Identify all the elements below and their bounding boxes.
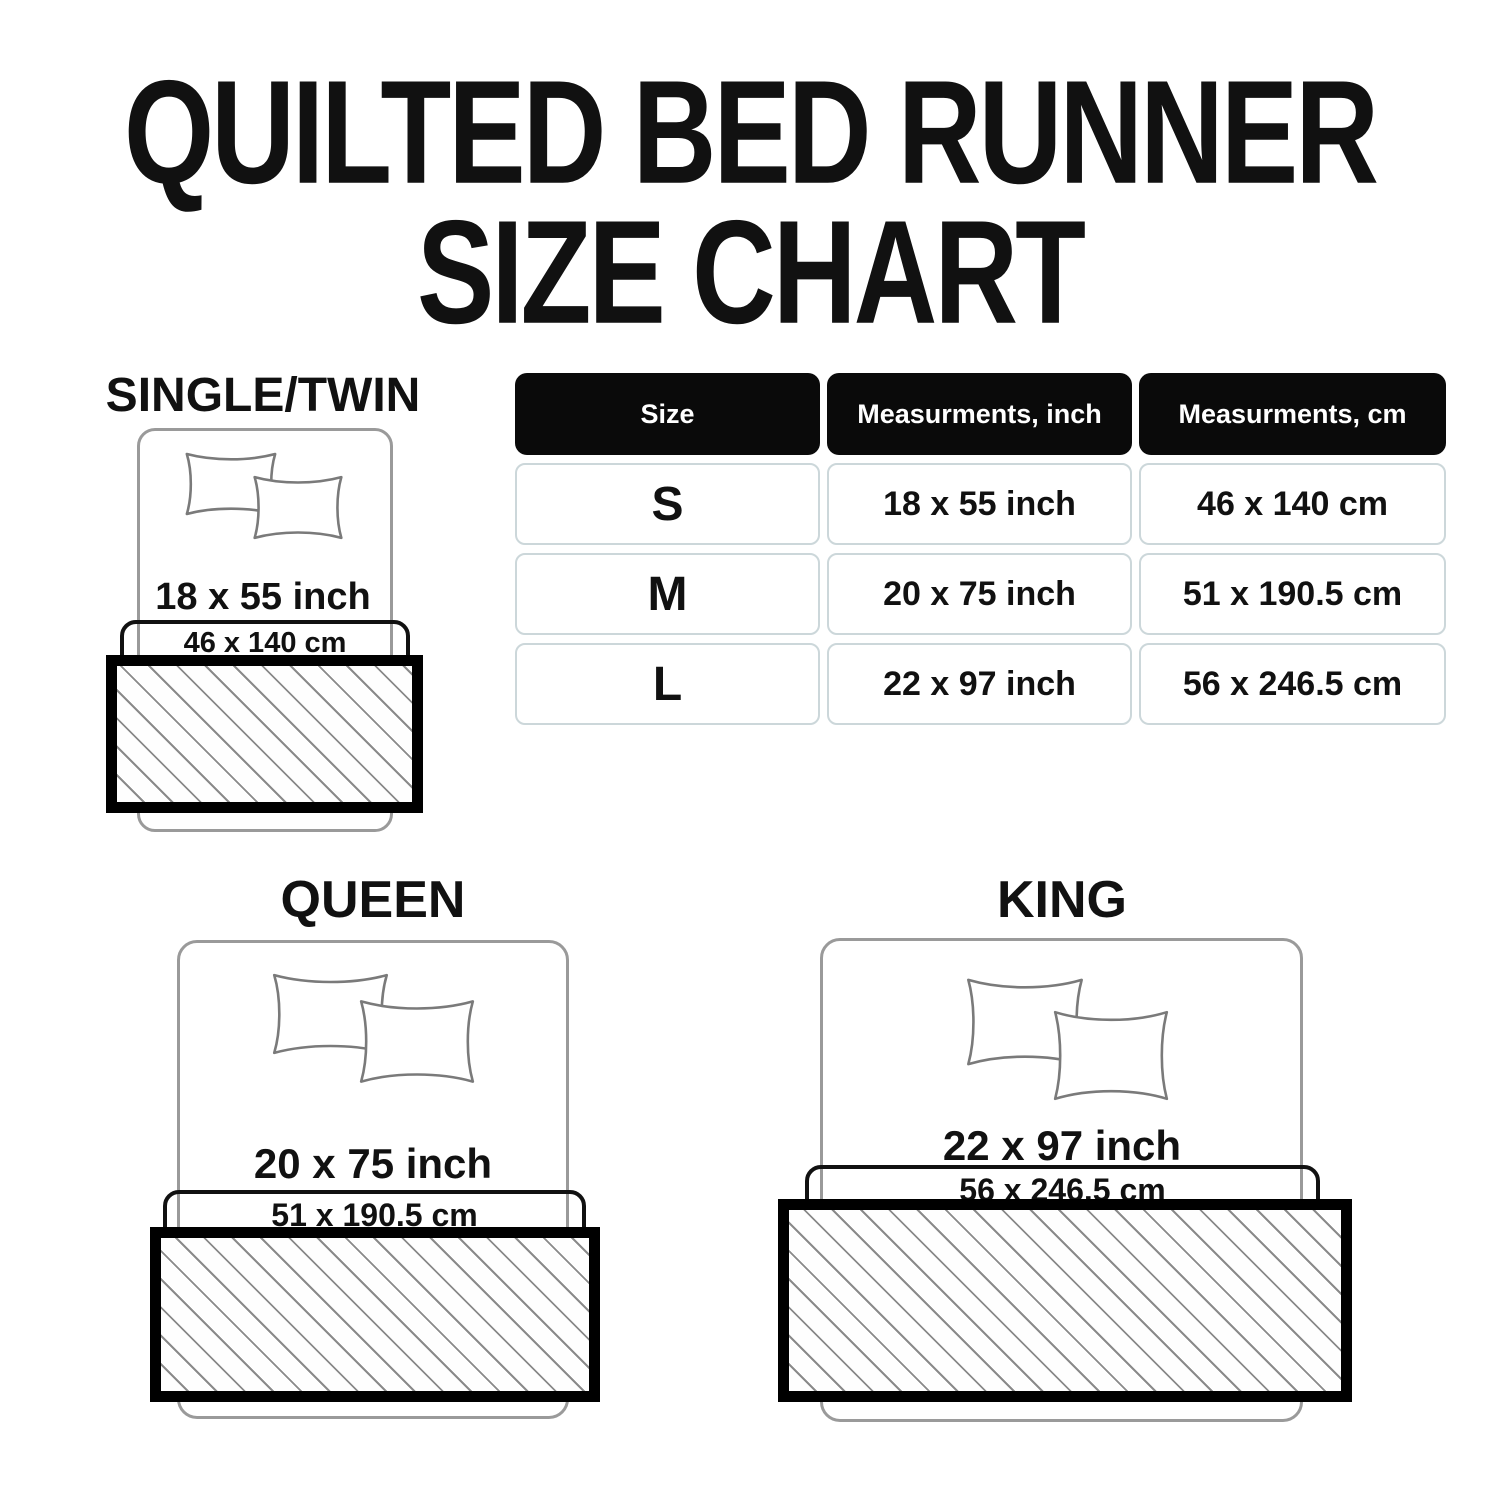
table-cell-cm: 51 x 190.5 cm <box>1139 553 1446 635</box>
inch-measurement-label: 22 x 97 inch <box>862 1122 1262 1170</box>
diagram-queen-title: QUEEN <box>173 870 573 930</box>
pillow-icon <box>246 470 350 545</box>
runner-swatch <box>106 655 423 813</box>
page-title-line2: SIZE CHART <box>0 198 1500 345</box>
inch-measurement-label: 18 x 55 inch <box>63 576 463 619</box>
table-cell-size: S <box>515 463 820 545</box>
page-title-line1: QUILTED BED RUNNER <box>0 58 1500 205</box>
table-cell-size: M <box>515 553 820 635</box>
table-cell-inch: 22 x 97 inch <box>827 643 1132 725</box>
pillow-icon <box>1044 1002 1178 1109</box>
table-header-size: Size <box>515 373 820 455</box>
inch-measurement-label: 20 x 75 inch <box>173 1140 573 1188</box>
table-header-inch: Measurments, inch <box>827 373 1132 455</box>
table-cell-inch: 20 x 75 inch <box>827 553 1132 635</box>
runner-swatch <box>778 1199 1352 1402</box>
table-cell-cm: 46 x 140 cm <box>1139 463 1446 545</box>
bed-runner-size-chart: QUILTED BED RUNNER SIZE CHART SINGLE/TWI… <box>0 0 1500 1500</box>
size-table: Size Measurments, inch Measurments, cm S… <box>515 373 1446 725</box>
table-cell-cm: 56 x 246.5 cm <box>1139 643 1446 725</box>
diagram-king-title: KING <box>862 870 1262 930</box>
pillow-icon <box>350 992 484 1091</box>
table-cell-inch: 18 x 55 inch <box>827 463 1132 545</box>
diagram-single-twin-title: SINGLE/TWIN <box>63 368 463 423</box>
table-cell-size: L <box>515 643 820 725</box>
table-header-cm: Measurments, cm <box>1139 373 1446 455</box>
runner-swatch <box>150 1227 600 1402</box>
